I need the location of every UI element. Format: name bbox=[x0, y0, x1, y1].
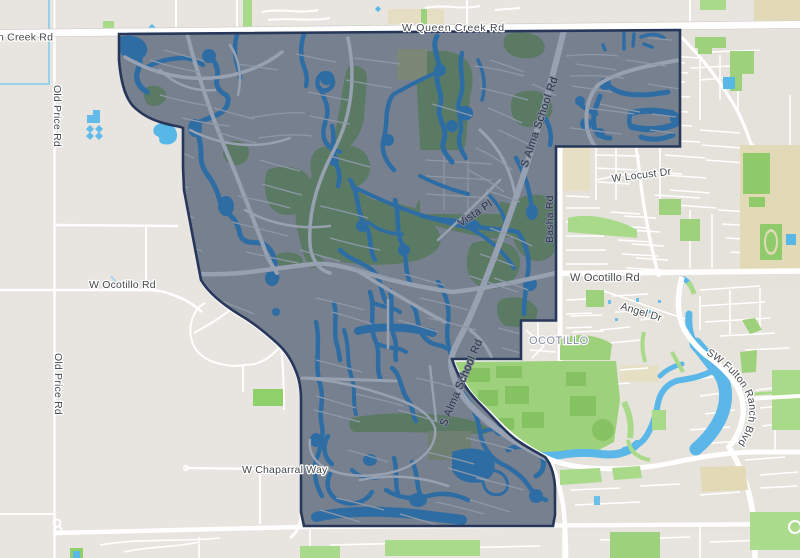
svg-text:OCOTILLO: OCOTILLO bbox=[529, 335, 589, 347]
svg-text:W Ocotillo Rd: W Ocotillo Rd bbox=[570, 272, 640, 284]
svg-text:Basha Rd: Basha Rd bbox=[544, 195, 556, 243]
svg-text:W Queen Creek Rd: W Queen Creek Rd bbox=[402, 22, 505, 34]
svg-text:n Creek Rd: n Creek Rd bbox=[0, 32, 53, 44]
svg-text:Old Price Rd: Old Price Rd bbox=[51, 85, 63, 147]
svg-text:W Ocotillo Rd: W Ocotillo Rd bbox=[89, 279, 156, 291]
svg-text:Old Price Rd: Old Price Rd bbox=[52, 353, 64, 415]
svg-text:W Chaparral Way: W Chaparral Way bbox=[242, 464, 328, 476]
